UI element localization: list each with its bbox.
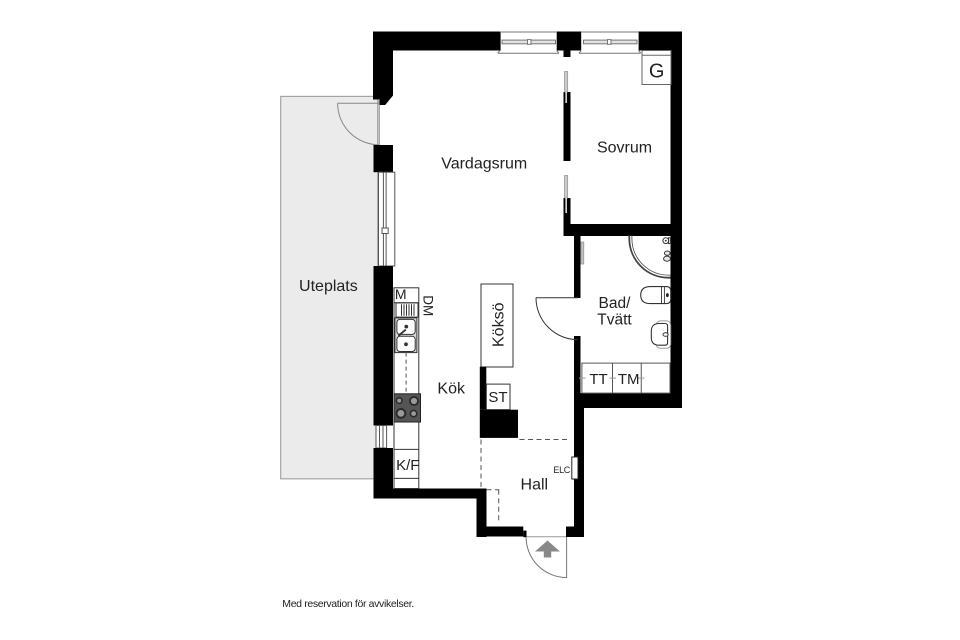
- svg-text:Tvätt: Tvätt: [597, 311, 632, 328]
- svg-text:Vardagsrum: Vardagsrum: [441, 156, 527, 173]
- svg-text:G: G: [649, 61, 665, 83]
- svg-text:Bad/: Bad/: [599, 295, 632, 312]
- svg-text:Med reservation för avvikelser: Med reservation för avvikelser.: [282, 598, 414, 610]
- svg-text:Hall: Hall: [521, 476, 549, 493]
- svg-text:M: M: [395, 286, 407, 302]
- svg-text:Kök: Kök: [437, 381, 466, 398]
- svg-text:TT: TT: [589, 371, 607, 388]
- svg-text:K/F: K/F: [396, 457, 419, 474]
- svg-text:ST: ST: [488, 389, 507, 406]
- svg-text:Uteplats: Uteplats: [299, 278, 358, 295]
- svg-text:Köksö: Köksö: [491, 302, 508, 347]
- svg-text:TM: TM: [618, 371, 640, 388]
- svg-text:DM: DM: [421, 295, 436, 316]
- svg-text:Sovrum: Sovrum: [597, 140, 652, 157]
- svg-text:ELC: ELC: [553, 465, 570, 475]
